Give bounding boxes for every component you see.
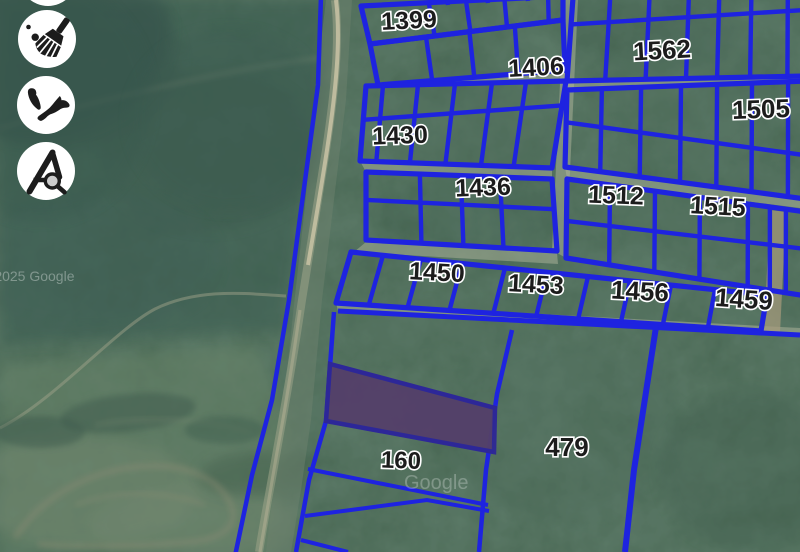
svg-text:1406: 1406	[508, 52, 565, 83]
svg-text:©2025 Google: ©2025 Google	[0, 268, 75, 284]
svg-text:1459: 1459	[714, 282, 774, 316]
svg-text:1430: 1430	[372, 121, 429, 151]
svg-text:1505: 1505	[732, 93, 791, 125]
svg-text:1450: 1450	[408, 257, 465, 288]
svg-text:1562: 1562	[632, 33, 691, 66]
svg-text:479: 479	[545, 432, 588, 462]
svg-text:160: 160	[380, 447, 421, 475]
svg-text:1453: 1453	[507, 269, 564, 300]
svg-text:Google: Google	[404, 472, 469, 494]
svg-text:1512: 1512	[588, 181, 645, 211]
svg-text:1515: 1515	[689, 191, 746, 222]
svg-text:1399: 1399	[381, 5, 438, 36]
svg-text:1456: 1456	[610, 274, 669, 307]
svg-text:1436: 1436	[455, 173, 512, 203]
